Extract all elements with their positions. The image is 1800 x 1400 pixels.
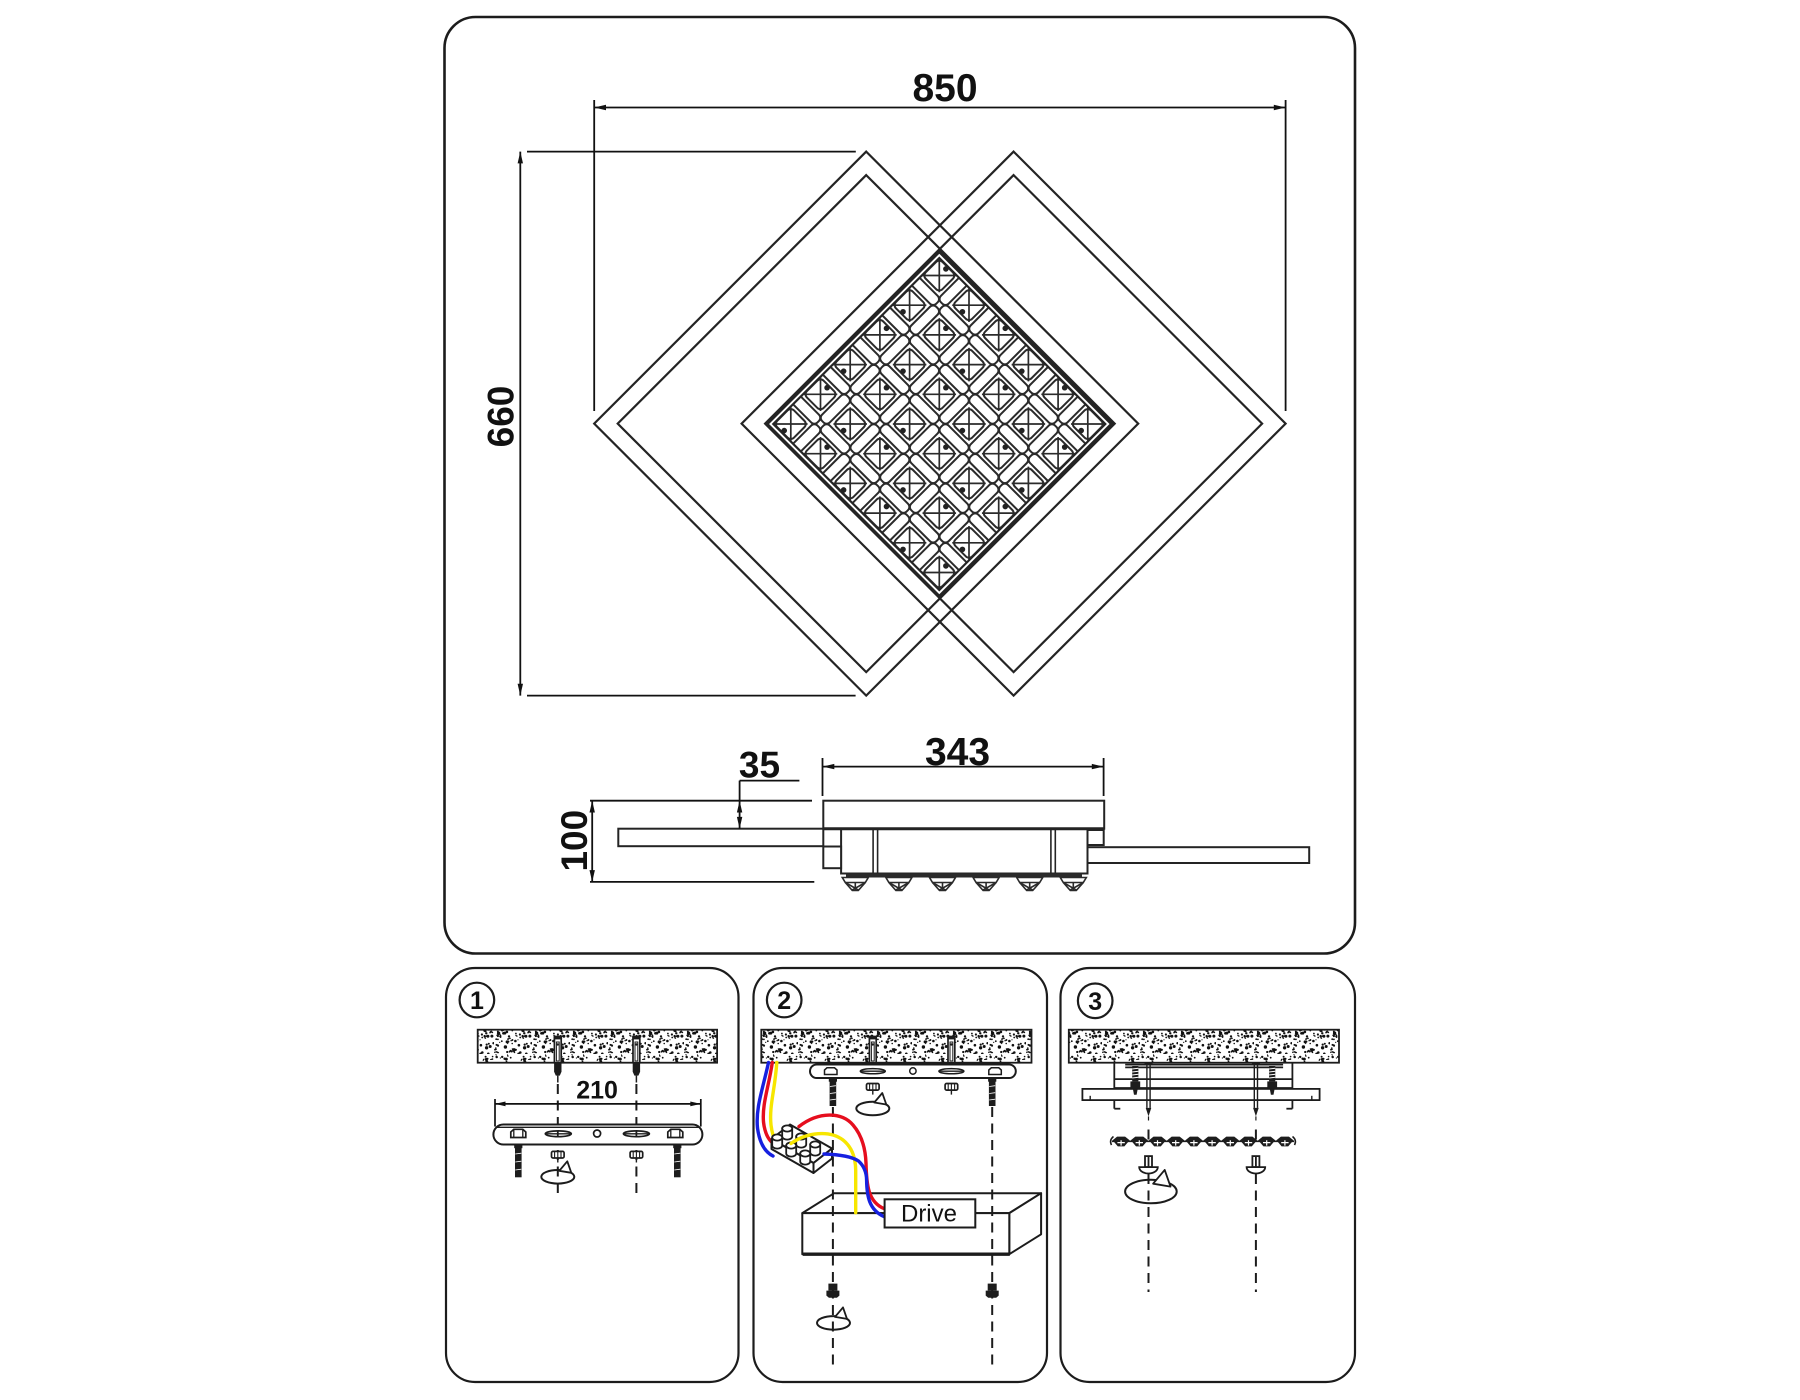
svg-text:35: 35 [739, 745, 780, 786]
svg-text:1: 1 [470, 987, 484, 1015]
svg-text:343: 343 [925, 731, 990, 774]
svg-text:Drive: Drive [901, 1201, 957, 1228]
svg-text:210: 210 [576, 1077, 618, 1105]
svg-text:2: 2 [777, 987, 791, 1015]
svg-text:3: 3 [1088, 988, 1102, 1016]
svg-text:100: 100 [554, 810, 595, 872]
svg-text:660: 660 [481, 386, 522, 448]
svg-text:850: 850 [912, 67, 977, 110]
